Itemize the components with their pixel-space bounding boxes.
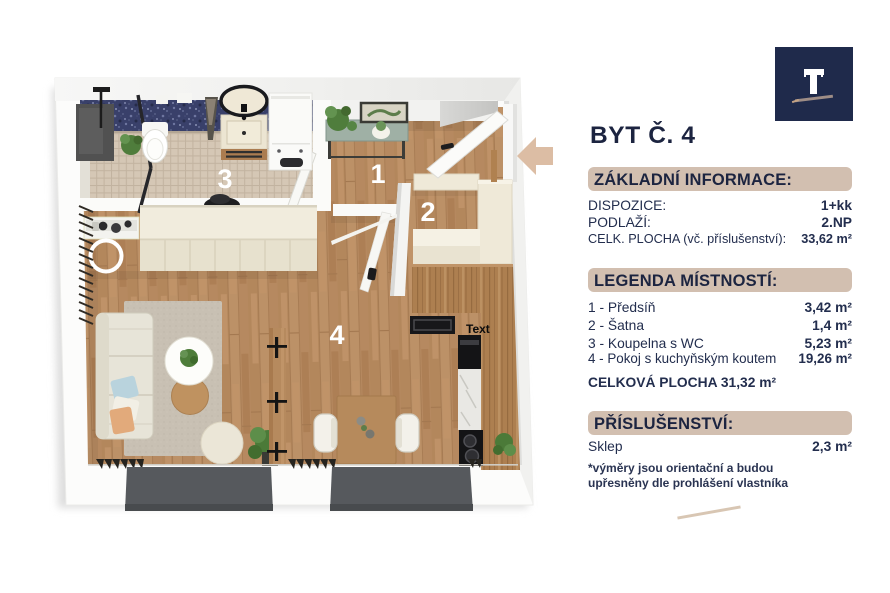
svg-text:3: 3: [217, 164, 232, 194]
svg-text:4: 4: [329, 320, 344, 350]
svg-text:2: 2: [420, 197, 435, 227]
svg-text:1: 1: [370, 159, 385, 189]
svg-text:Text: Text: [466, 322, 490, 336]
